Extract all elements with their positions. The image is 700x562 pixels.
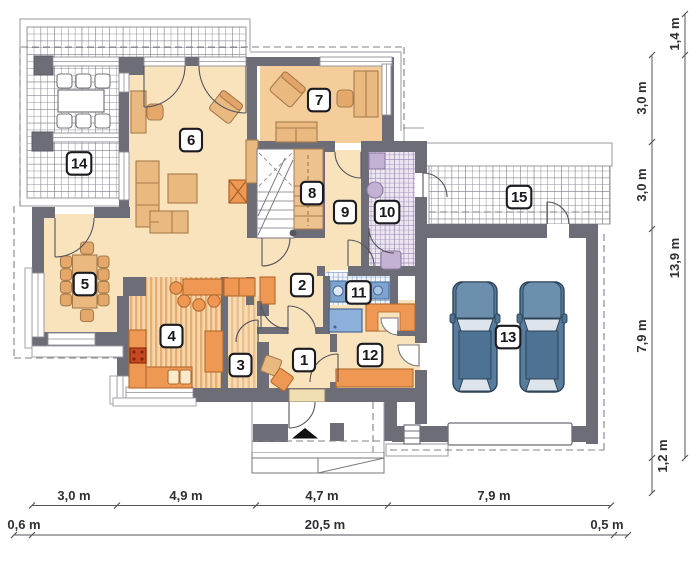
svg-text:1: 1 xyxy=(300,352,308,369)
svg-text:7: 7 xyxy=(315,92,323,109)
svg-text:3: 3 xyxy=(237,357,245,374)
svg-text:7,9 m: 7,9 m xyxy=(634,319,649,352)
svg-text:6: 6 xyxy=(187,132,195,149)
svg-text:0,5 m: 0,5 m xyxy=(590,517,623,532)
svg-text:8: 8 xyxy=(308,185,316,202)
svg-text:0,6 m: 0,6 m xyxy=(7,517,40,532)
svg-text:3,0 m: 3,0 m xyxy=(634,168,649,201)
svg-text:12: 12 xyxy=(362,347,378,364)
svg-text:11: 11 xyxy=(351,285,366,302)
svg-text:4: 4 xyxy=(168,328,177,345)
svg-text:1,4 m: 1,4 m xyxy=(667,17,682,50)
svg-text:10: 10 xyxy=(379,204,395,221)
svg-text:2: 2 xyxy=(298,277,306,294)
svg-text:4,9 m: 4,9 m xyxy=(169,488,202,503)
svg-text:1,2 m: 1,2 m xyxy=(655,439,670,472)
svg-text:3,0 m: 3,0 m xyxy=(634,81,649,114)
svg-text:15: 15 xyxy=(511,189,527,206)
svg-text:9: 9 xyxy=(341,204,349,221)
svg-text:7,9 m: 7,9 m xyxy=(477,488,510,503)
svg-text:14: 14 xyxy=(71,156,88,173)
svg-text:13: 13 xyxy=(500,329,516,346)
svg-text:13,9 m: 13,9 m xyxy=(667,238,682,278)
svg-text:4,7 m: 4,7 m xyxy=(305,488,338,503)
svg-text:20,5 m: 20,5 m xyxy=(305,517,345,532)
svg-text:3,0 m: 3,0 m xyxy=(57,488,90,503)
svg-text:5: 5 xyxy=(81,276,89,293)
